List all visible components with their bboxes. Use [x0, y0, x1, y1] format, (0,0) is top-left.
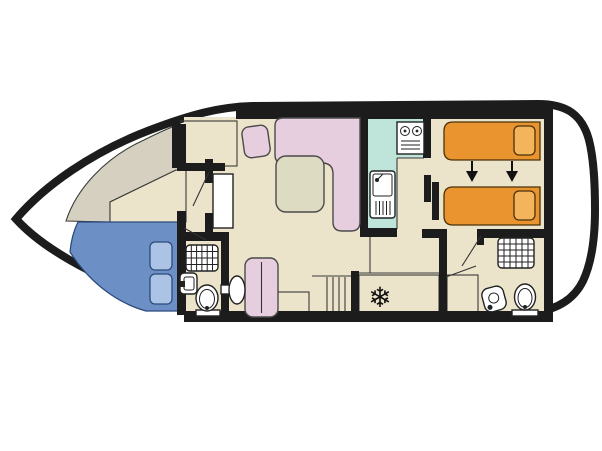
- snowflake-icon: ❄: [368, 281, 391, 314]
- galley-bottom-wall: [360, 228, 397, 237]
- fridge-right-wall: [439, 229, 447, 315]
- fwd-washbasin: [180, 273, 197, 294]
- floorplan-image: ❄: [0, 0, 602, 451]
- bed-pillow: [514, 191, 535, 220]
- aft-shower: [498, 238, 534, 268]
- corner-seat: [241, 124, 271, 158]
- saloon-table: [276, 156, 324, 212]
- boat-floor-plan: ❄: [0, 0, 602, 451]
- top-wall: [236, 107, 551, 119]
- bed-pillow: [150, 242, 172, 270]
- sliding-door-stub-b: [432, 182, 439, 220]
- corridor-stub-upper: [205, 159, 213, 183]
- bow-cabin-door-leaf: [213, 174, 233, 228]
- bed-pillow: [514, 126, 535, 155]
- fwd-bathroom-right-wall: [221, 232, 229, 315]
- aft-bathroom-wall-right: [477, 229, 551, 238]
- bow-double-bed: [70, 222, 178, 311]
- bottom-wall: [184, 311, 553, 322]
- saloon-galley-wall: [360, 118, 368, 232]
- bow-cabin-wall-upper: [177, 124, 186, 171]
- sliding-door-stub-a: [424, 175, 431, 202]
- fridge-left-wall: [351, 271, 359, 315]
- galley-sink: [370, 171, 395, 218]
- stove: [397, 122, 424, 154]
- fwd-shower: [186, 245, 218, 271]
- stern-wall: [544, 107, 553, 320]
- bow-cabin-wall-lower: [177, 211, 186, 315]
- bed-pillow: [150, 274, 172, 304]
- aft-bathroom-wall-left: [422, 229, 447, 238]
- bench-seat: [245, 258, 278, 317]
